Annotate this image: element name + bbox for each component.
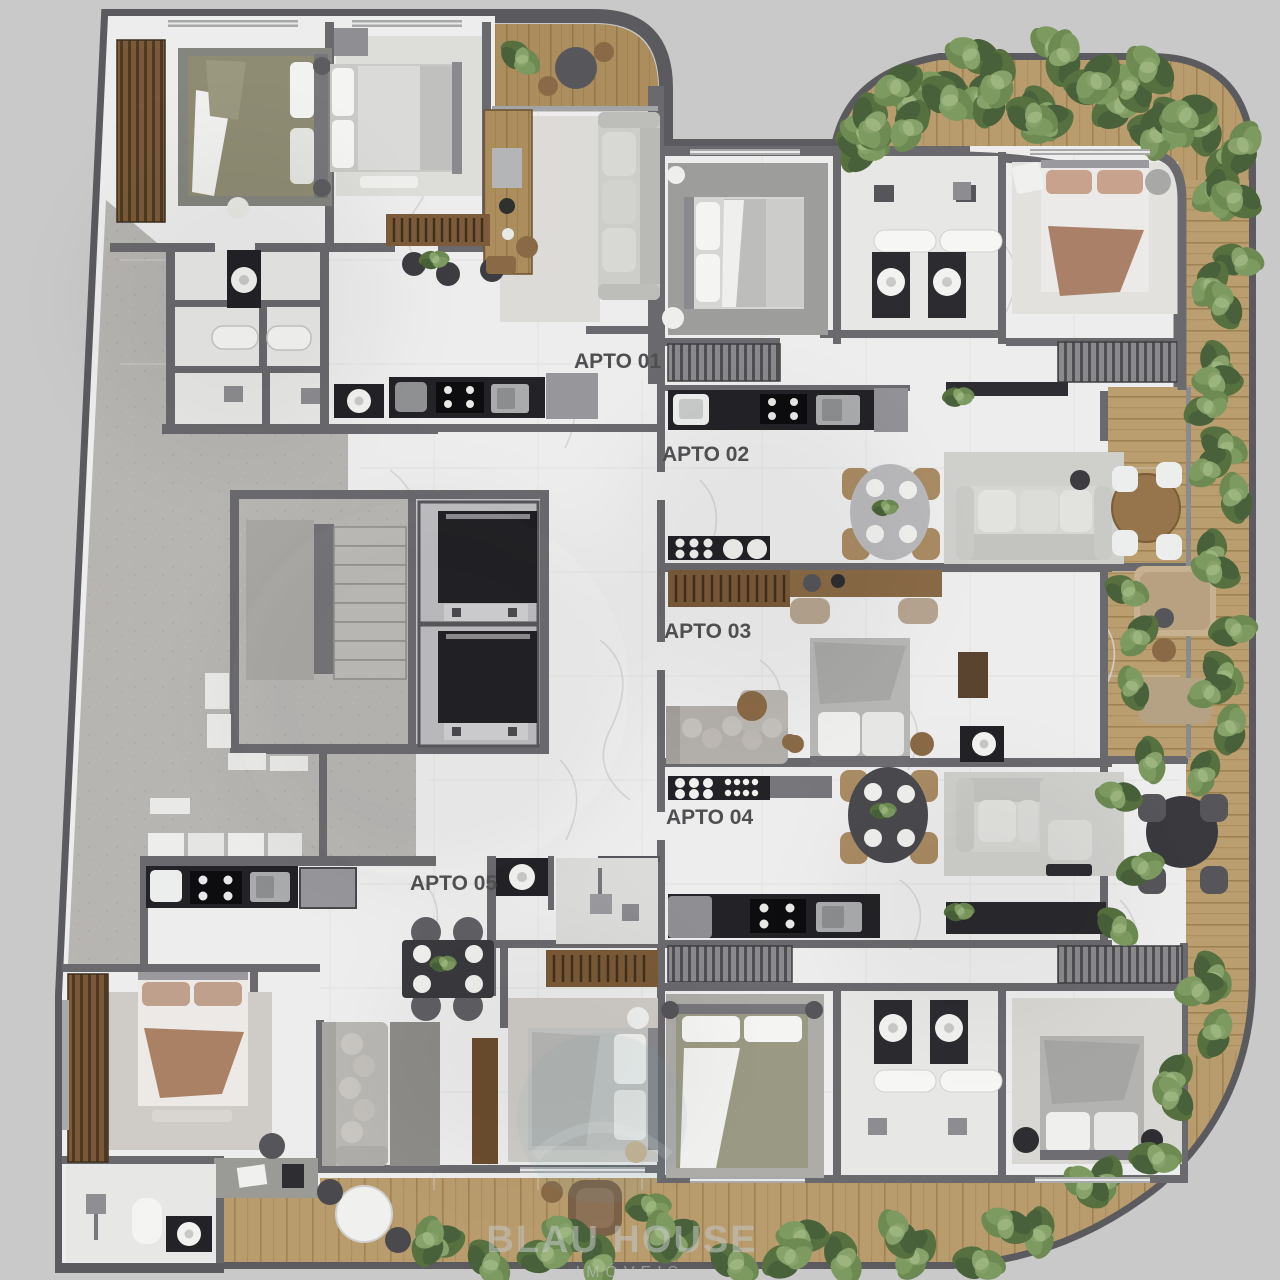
svg-text:IMÓVEIS: IMÓVEIS	[576, 1262, 685, 1280]
svg-text:APTO 05: APTO 05	[410, 872, 497, 895]
svg-text:APTO 02: APTO 02	[662, 443, 749, 466]
svg-text:APTO 01: APTO 01	[574, 350, 661, 373]
svg-text:BLAU HOUSE: BLAU HOUSE	[486, 1219, 757, 1261]
svg-text:APTO 03: APTO 03	[664, 620, 751, 643]
svg-text:APTO 04: APTO 04	[666, 806, 753, 829]
